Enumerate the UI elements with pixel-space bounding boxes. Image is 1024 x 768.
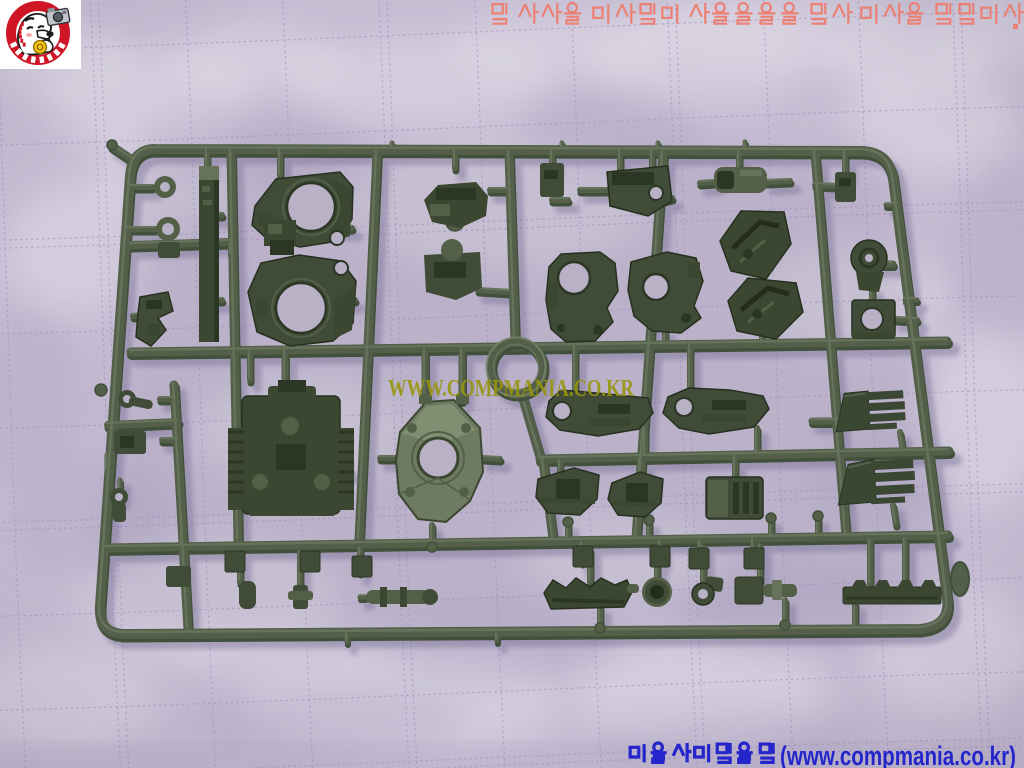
svg-text:(www.compmania.co.kr): (www.compmania.co.kr) (780, 741, 1016, 768)
svg-text:WWW.COMPMANIA.CO.KR: WWW.COMPMANIA.CO.KR (388, 376, 635, 402)
